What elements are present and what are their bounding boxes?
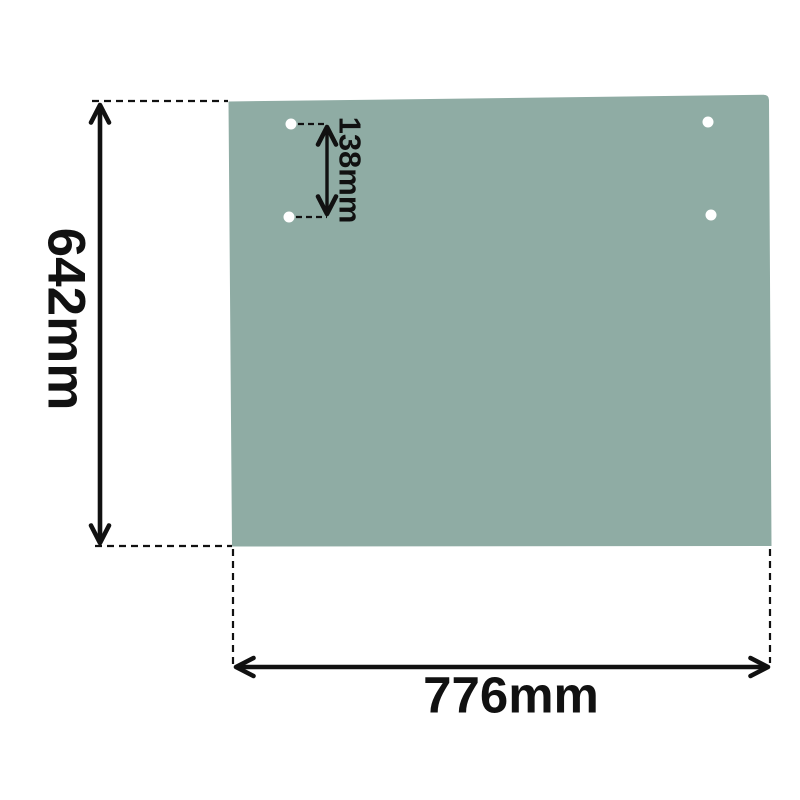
mounting-hole-top-left-upper xyxy=(286,119,297,130)
dimension-diagram: 642mm 138mm 776mm xyxy=(0,0,800,800)
mounting-hole-top-right-lower xyxy=(706,210,717,221)
height-dimension: 642mm xyxy=(37,101,233,546)
width-dimension: 776mm xyxy=(233,549,770,724)
mounting-hole-top-right-upper xyxy=(703,117,714,128)
mounting-hole-top-left-lower xyxy=(284,212,295,223)
diagram-canvas: 642mm 138mm 776mm xyxy=(0,0,800,800)
hole-spacing-dimension-label: 138mm xyxy=(333,117,368,224)
width-dimension-label: 776mm xyxy=(423,667,599,724)
height-dimension-label: 642mm xyxy=(37,228,96,411)
glass-panel-shape xyxy=(229,95,772,547)
